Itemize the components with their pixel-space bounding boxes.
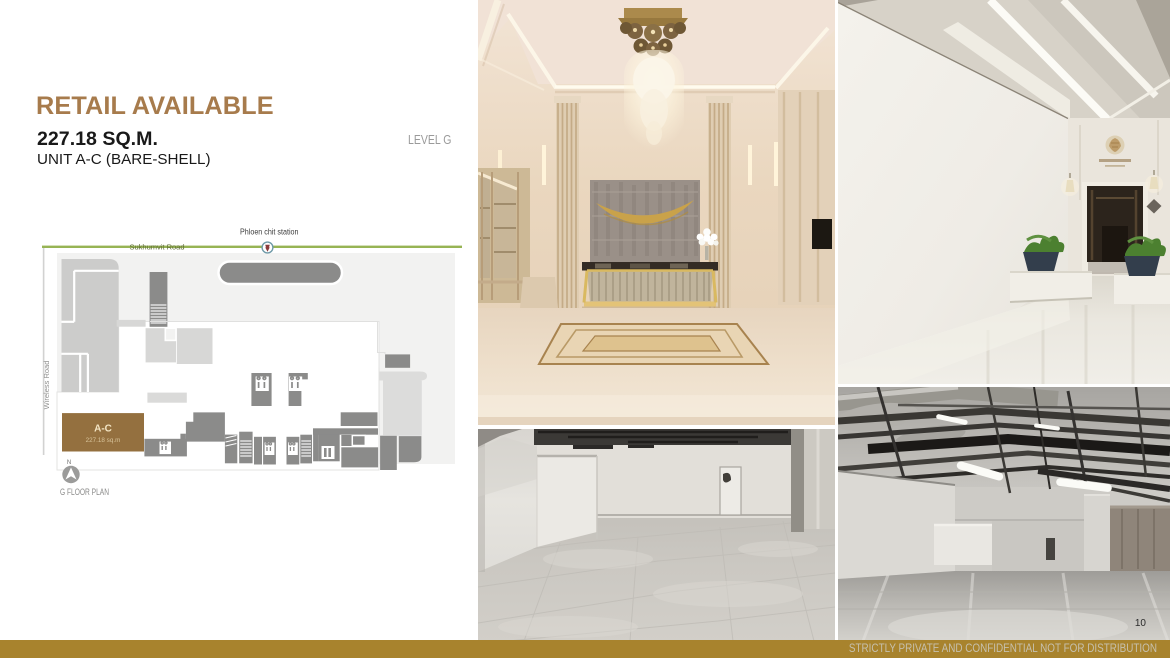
svg-text:G FLOOR PLAN: G FLOOR PLAN xyxy=(60,487,109,497)
svg-text:Phloen chit station: Phloen chit station xyxy=(240,228,299,237)
svg-text:N: N xyxy=(67,460,71,466)
svg-text:Wireless Road: Wireless Road xyxy=(42,361,51,410)
svg-text:Sukhumvit Road: Sukhumvit Road xyxy=(129,243,184,252)
svg-text:227.18 sq.m: 227.18 sq.m xyxy=(86,437,121,444)
svg-text:A-C: A-C xyxy=(94,424,112,435)
